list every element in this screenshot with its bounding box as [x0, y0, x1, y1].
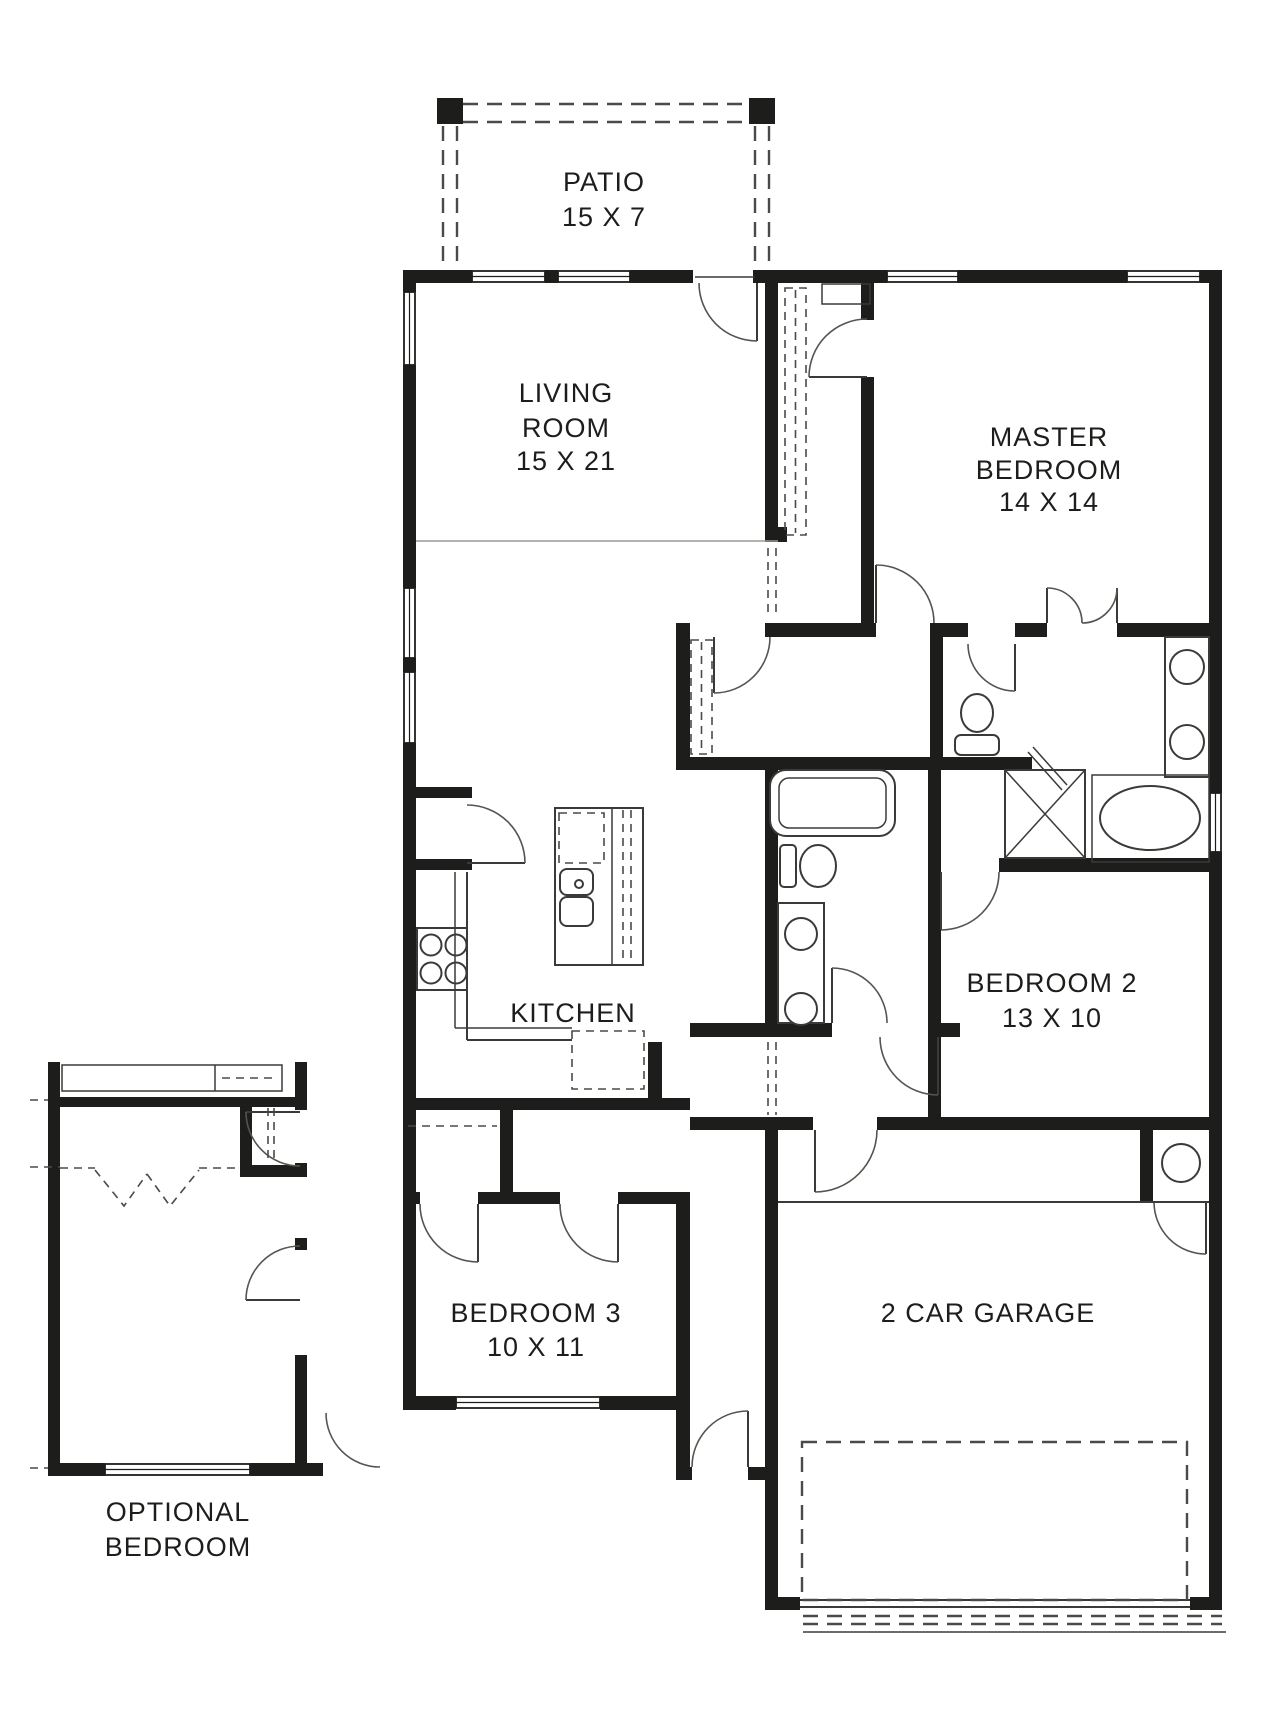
bedroom3-door [560, 1204, 618, 1262]
window [404, 292, 415, 365]
patio-door [695, 277, 757, 341]
window [558, 271, 630, 282]
hall-toilet [780, 845, 836, 887]
master-bedroom-dims: 14 X 14 [999, 487, 1099, 517]
closet-shelves [785, 284, 870, 535]
bedroom2-label: BEDROOM 2 [966, 968, 1137, 998]
window [1127, 271, 1200, 282]
window [456, 1397, 600, 1408]
living-room-label-1: LIVING [519, 378, 614, 408]
optional-french-door-upper [246, 1112, 300, 1166]
hall-vanity [778, 903, 824, 1025]
optional-bedroom-label-1: OPTIONAL [106, 1497, 251, 1527]
patio-dims: 15 X 7 [562, 202, 646, 232]
garage-label: 2 CAR GARAGE [881, 1298, 1096, 1328]
floor-plan-drawing: PATIO 15 X 7 LIVING ROOM 15 X 21 MASTER … [0, 0, 1261, 1715]
optional-bedroom-label-2: BEDROOM [105, 1532, 252, 1562]
optional-french-door-lower [246, 1246, 300, 1300]
window [1210, 793, 1221, 852]
master-bedroom-label-1: MASTER [990, 422, 1109, 452]
garage-door [800, 1600, 1226, 1632]
floor-plan-page: PATIO 15 X 7 LIVING ROOM 15 X 21 MASTER … [0, 0, 1261, 1715]
master-bath-double-doors [1047, 588, 1117, 623]
context-door-arc [326, 1413, 380, 1467]
bedroom2-door [941, 872, 999, 930]
hall-tub [770, 770, 895, 836]
bedroom3-closet-door [420, 1204, 478, 1262]
patio-post [437, 98, 463, 124]
window [404, 672, 415, 743]
master-toilet [955, 694, 999, 755]
master-bedroom-door [876, 565, 934, 623]
garage-storage-dashed [802, 1442, 1187, 1600]
hall-bath-door [832, 968, 887, 1023]
bedroom3-dims: 10 X 11 [487, 1332, 585, 1362]
patio-post [749, 98, 775, 124]
window [105, 1464, 250, 1475]
walkin-shelves [691, 640, 712, 754]
walkin-closet-door [714, 637, 770, 693]
kitchen-label: KITCHEN [510, 998, 636, 1028]
front-door [692, 1411, 748, 1467]
living-room-dims: 15 X 21 [516, 446, 616, 476]
range [417, 928, 467, 990]
master-vanity [1165, 637, 1209, 777]
master-bedroom-label-2: BEDROOM [976, 455, 1123, 485]
patio-label: PATIO [563, 167, 645, 197]
master-tub [1092, 775, 1209, 862]
water-heater [1162, 1144, 1200, 1182]
window [887, 271, 958, 282]
bedroom3-label: BEDROOM 3 [450, 1298, 621, 1328]
master-closet-door [809, 319, 867, 377]
window [404, 588, 415, 658]
labels: PATIO 15 X 7 LIVING ROOM 15 X 21 MASTER … [105, 167, 1138, 1562]
water-heater-door [1154, 1202, 1206, 1254]
toilet-room-door [968, 644, 1015, 691]
garage-entry-door [815, 1130, 877, 1192]
refrigerator [572, 1031, 644, 1089]
kitchen-island [555, 808, 643, 965]
pantry-door [467, 805, 525, 863]
window [472, 271, 545, 282]
living-room-label-2: ROOM [522, 413, 610, 443]
bedroom2-dims: 13 X 10 [1002, 1003, 1102, 1033]
